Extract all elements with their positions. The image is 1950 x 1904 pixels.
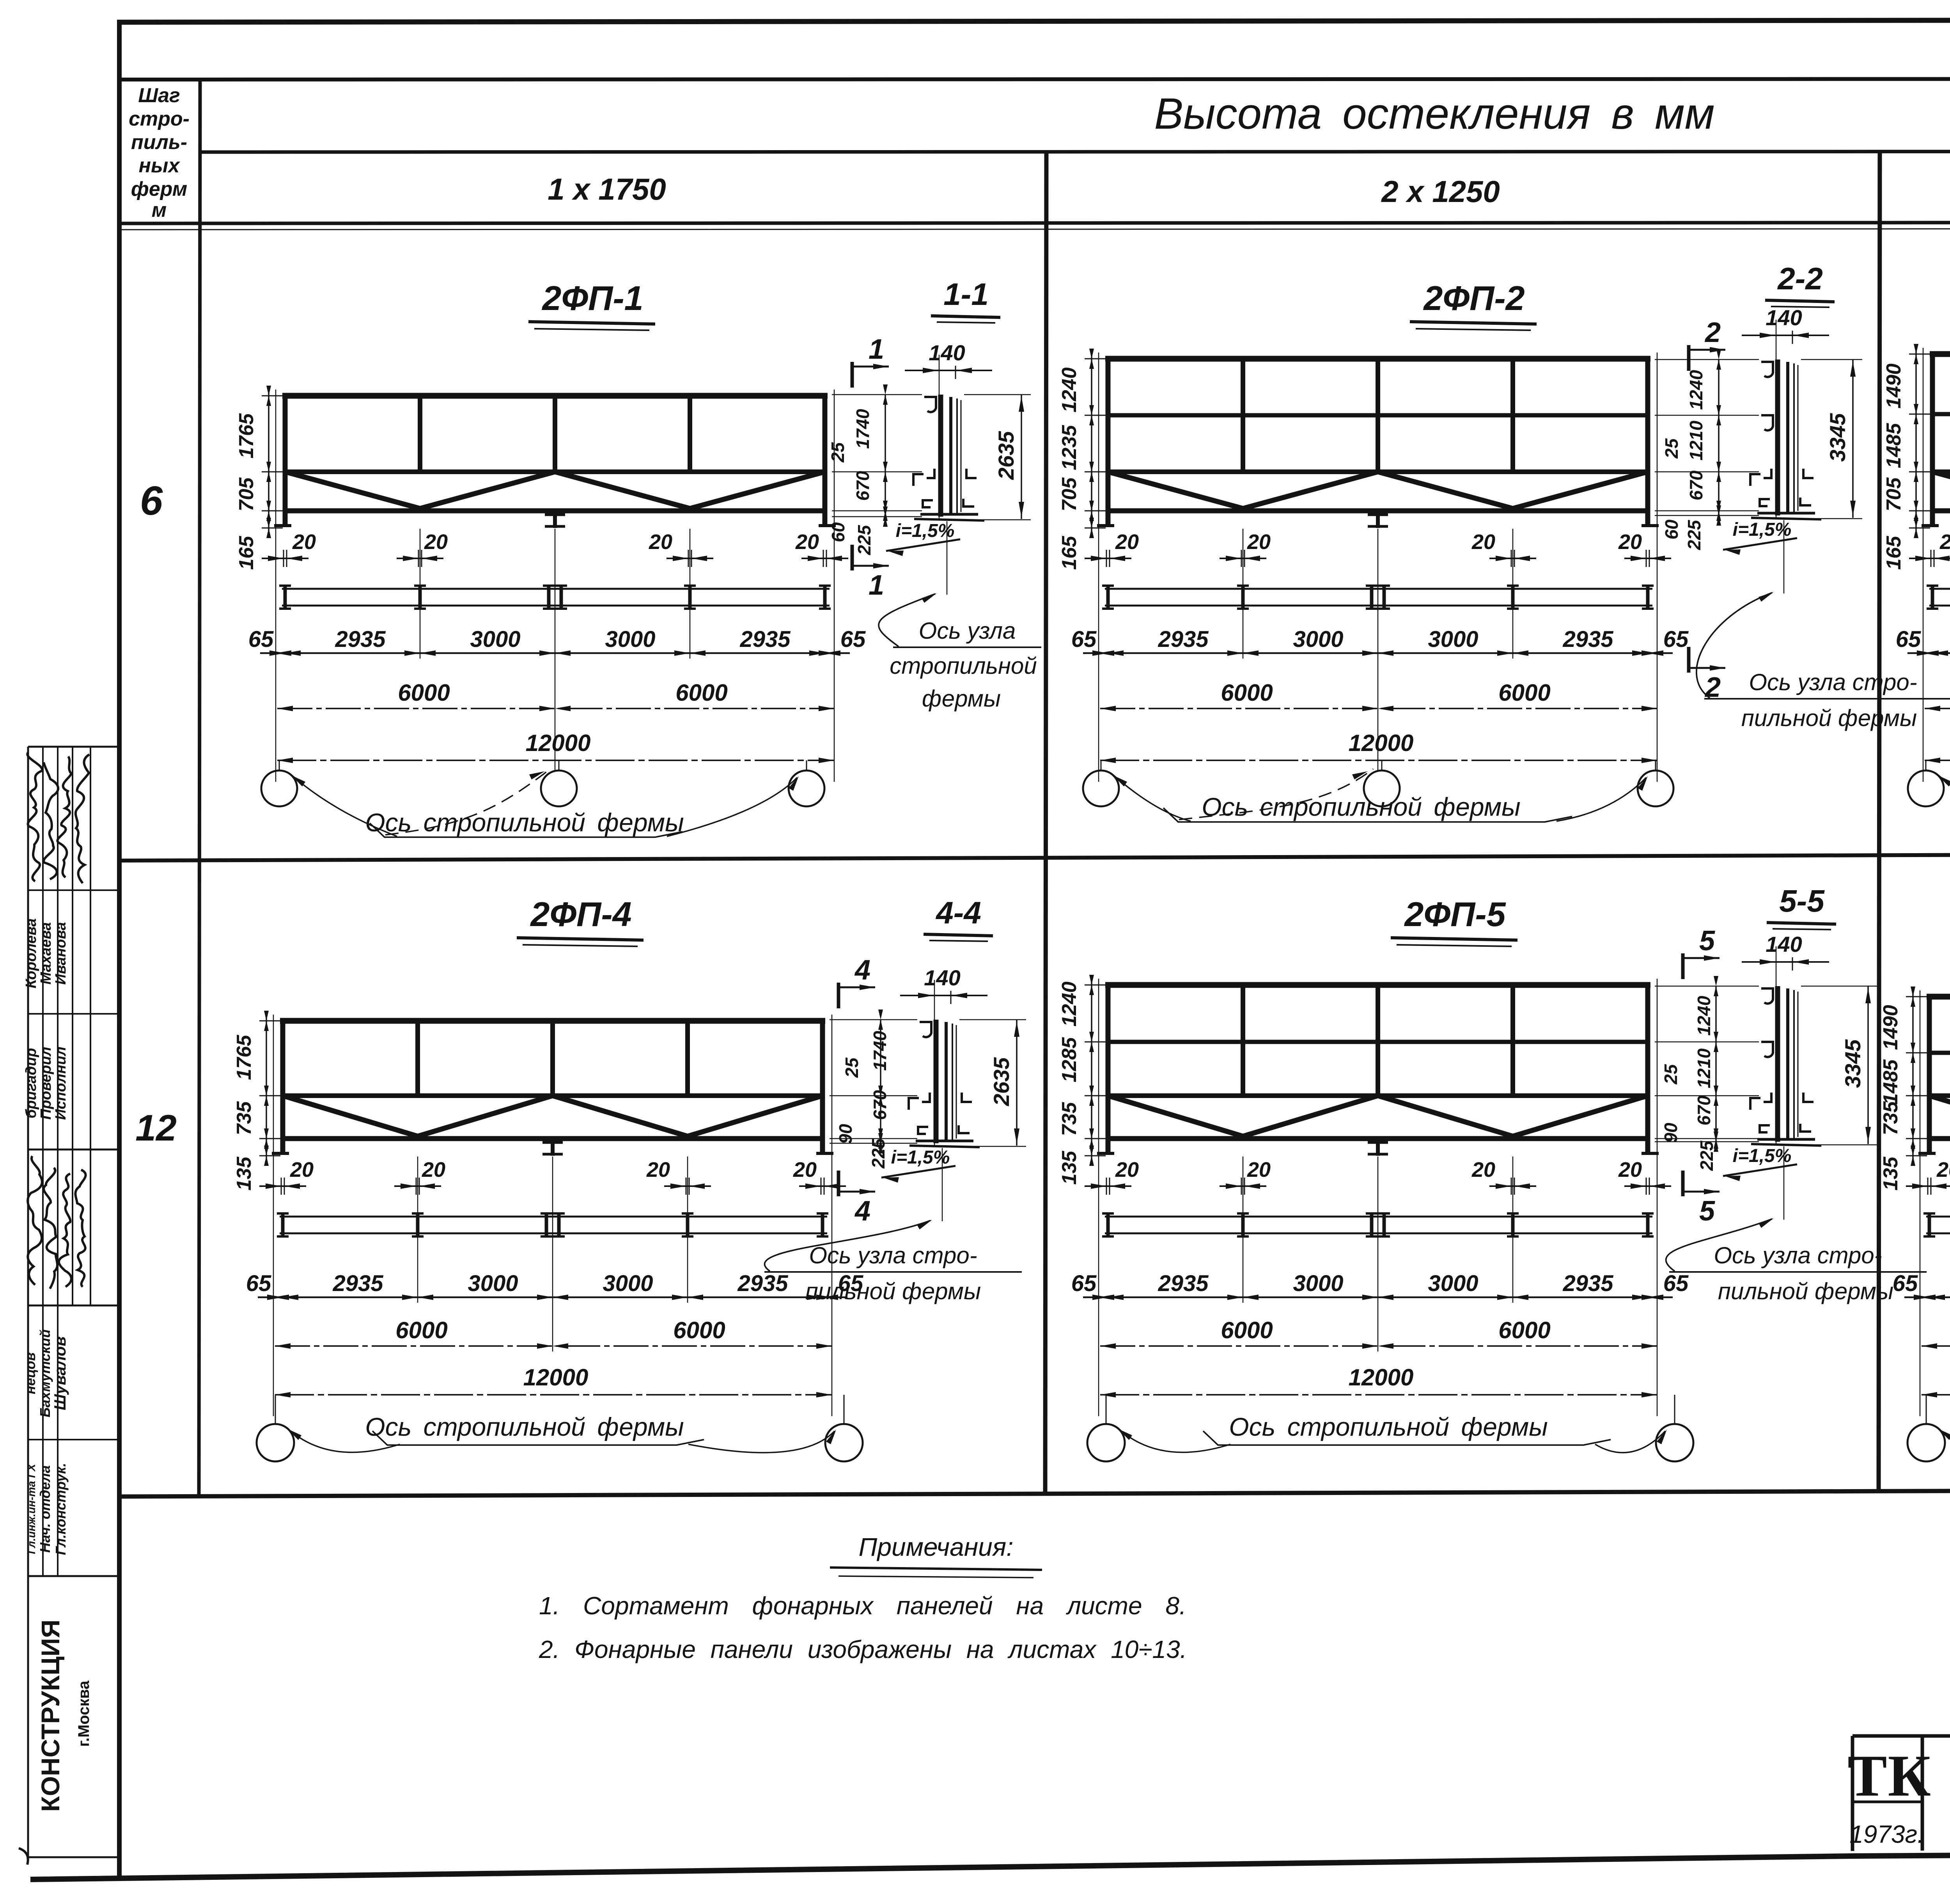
svg-text:12000: 12000 — [523, 1364, 589, 1390]
svg-text:1 х 1750: 1 х 1750 — [548, 172, 666, 206]
svg-text:165: 165 — [235, 536, 258, 570]
svg-text:стропильной: стропильной — [890, 653, 1037, 679]
svg-text:6000: 6000 — [1221, 680, 1273, 706]
svg-text:225: 225 — [1696, 1140, 1717, 1171]
svg-text:25: 25 — [1661, 438, 1682, 459]
svg-text:670: 670 — [1694, 1095, 1714, 1125]
svg-text:пильной фермы: пильной фермы — [1741, 705, 1917, 731]
svg-text:1: 1 — [869, 334, 884, 365]
svg-text:20: 20 — [793, 1158, 817, 1181]
svg-text:705: 705 — [1058, 477, 1081, 512]
svg-text:2935: 2935 — [1562, 1271, 1613, 1296]
svg-text:2935: 2935 — [1158, 627, 1209, 652]
svg-text:Ось узла: Ось узла — [919, 618, 1016, 644]
svg-text:735: 735 — [1058, 1102, 1081, 1136]
svg-text:1210: 1210 — [1694, 1048, 1714, 1088]
svg-text:пильной фермы: пильной фермы — [1718, 1278, 1893, 1304]
svg-text:2ФП-5: 2ФП-5 — [1404, 895, 1506, 933]
svg-text:Примечания:: Примечания: — [859, 1532, 1014, 1561]
svg-text:6000: 6000 — [398, 680, 450, 706]
svg-text:5: 5 — [1699, 925, 1715, 956]
svg-text:140: 140 — [1766, 305, 1802, 330]
svg-text:20: 20 — [1471, 1158, 1495, 1181]
svg-text:2 х 1250: 2 х 1250 — [1381, 174, 1500, 209]
svg-text:Ось узла стро-: Ось узла стро- — [809, 1242, 977, 1268]
svg-text:i=1,5%: i=1,5% — [896, 521, 955, 541]
svg-text:1765: 1765 — [233, 1034, 255, 1080]
svg-text:2935: 2935 — [739, 627, 791, 652]
svg-text:65: 65 — [248, 627, 274, 652]
svg-text:КОНСТРУКЦИЯ: КОНСТРУКЦИЯ — [36, 1619, 65, 1812]
svg-text:нецов: нецов — [22, 1352, 38, 1394]
svg-text:2ФП-2: 2ФП-2 — [1423, 279, 1525, 317]
svg-text:5-5: 5-5 — [1779, 884, 1825, 918]
svg-text:4-4: 4-4 — [935, 895, 981, 930]
svg-text:6: 6 — [140, 478, 163, 524]
svg-text:20: 20 — [1247, 1158, 1271, 1181]
svg-text:12000: 12000 — [1349, 730, 1414, 756]
svg-text:65: 65 — [1663, 1271, 1689, 1296]
svg-text:2635: 2635 — [994, 431, 1018, 480]
svg-text:1240: 1240 — [1058, 981, 1081, 1027]
svg-text:1490: 1490 — [1883, 363, 1905, 409]
svg-text:1285: 1285 — [1058, 1037, 1081, 1082]
svg-text:1490: 1490 — [1879, 1005, 1902, 1050]
svg-text:4: 4 — [854, 1196, 870, 1227]
svg-text:6000: 6000 — [395, 1317, 447, 1343]
svg-text:3000: 3000 — [468, 1271, 518, 1296]
svg-text:2935: 2935 — [1562, 627, 1613, 652]
svg-text:Ось стропильной фермы: Ось стропильной фермы — [1229, 1412, 1548, 1441]
svg-text:ферм: ферм — [131, 178, 187, 200]
svg-text:670: 670 — [853, 471, 873, 501]
svg-text:60: 60 — [1661, 519, 1682, 540]
svg-text:65: 65 — [1071, 1271, 1097, 1296]
svg-text:90: 90 — [1661, 1123, 1681, 1143]
svg-text:Королева: Королева — [23, 918, 39, 988]
svg-text:670: 670 — [1686, 470, 1706, 500]
svg-text:90: 90 — [835, 1124, 856, 1144]
svg-text:12000: 12000 — [1349, 1364, 1414, 1390]
svg-text:735: 735 — [1879, 1101, 1902, 1135]
svg-text:3000: 3000 — [603, 1271, 653, 1296]
svg-text:20: 20 — [1939, 530, 1950, 554]
svg-text:3000: 3000 — [1428, 627, 1478, 652]
svg-text:135: 135 — [1879, 1157, 1902, 1191]
svg-text:Ось стропильной фермы: Ось стропильной фермы — [1202, 792, 1520, 821]
svg-text:1: 1 — [869, 570, 884, 601]
svg-text:Ось стропильной фермы: Ось стропильной фермы — [365, 808, 684, 837]
svg-text:20: 20 — [290, 1158, 314, 1181]
svg-text:2935: 2935 — [335, 627, 386, 652]
svg-text:Ось стропильной фермы: Ось стропильной фермы — [365, 1412, 684, 1441]
svg-text:25: 25 — [842, 1057, 862, 1078]
svg-text:20: 20 — [1115, 530, 1139, 554]
svg-text:1235: 1235 — [1058, 425, 1081, 470]
svg-text:65: 65 — [246, 1271, 271, 1296]
svg-text:i=1,5%: i=1,5% — [1733, 519, 1792, 540]
svg-text:6000: 6000 — [675, 680, 727, 706]
svg-text:6000: 6000 — [1498, 680, 1550, 706]
svg-text:20: 20 — [1618, 530, 1642, 554]
svg-text:12000: 12000 — [526, 730, 591, 756]
svg-text:ных: ных — [139, 154, 181, 177]
svg-text:2635: 2635 — [989, 1057, 1014, 1106]
svg-text:20: 20 — [1247, 530, 1271, 554]
svg-text:20: 20 — [1936, 1158, 1950, 1181]
svg-text:5: 5 — [1699, 1196, 1715, 1227]
svg-text:Проверил: Проверил — [38, 1047, 54, 1120]
svg-text:705: 705 — [1883, 477, 1905, 512]
svg-text:2-2: 2-2 — [1777, 261, 1823, 296]
svg-text:2. Фонарные панели изображе: 2. Фонарные панели изображены на листах … — [539, 1635, 1187, 1663]
svg-text:1740: 1740 — [853, 409, 873, 449]
svg-text:1765: 1765 — [235, 413, 258, 459]
svg-text:Высота остекления в мм: Высота остекления в мм — [1154, 89, 1714, 138]
svg-text:20: 20 — [795, 530, 819, 554]
svg-text:1240: 1240 — [1058, 367, 1081, 413]
svg-text:Гл.инж.ин-та ГХ: Гл.инж.ин-та ГХ — [25, 1463, 37, 1554]
svg-text:6000: 6000 — [1221, 1317, 1273, 1343]
svg-text:6000: 6000 — [673, 1317, 725, 1343]
svg-text:1. Сортамент фонарных п: 1. Сортамент фонарных панелей на листе 8… — [539, 1592, 1186, 1620]
svg-text:12: 12 — [135, 1107, 177, 1149]
svg-text:3000: 3000 — [470, 627, 520, 652]
svg-text:20: 20 — [1471, 530, 1495, 554]
svg-text:бригадир: бригадир — [23, 1048, 39, 1119]
svg-text:1240: 1240 — [1694, 995, 1714, 1036]
svg-text:165: 165 — [1058, 536, 1081, 570]
svg-text:2: 2 — [1704, 317, 1721, 348]
svg-text:1485: 1485 — [1883, 423, 1905, 468]
svg-text:пильной фермы: пильной фермы — [805, 1278, 981, 1304]
svg-text:25: 25 — [1661, 1064, 1681, 1085]
svg-text:г.Москва: г.Москва — [75, 1680, 92, 1746]
svg-text:3345: 3345 — [1825, 413, 1850, 462]
svg-text:Ось узла стро-: Ось узла стро- — [1749, 669, 1917, 695]
svg-text:20: 20 — [424, 530, 448, 554]
svg-text:1973г.: 1973г. — [1849, 1820, 1924, 1848]
svg-text:225: 225 — [868, 1138, 888, 1169]
svg-text:3000: 3000 — [1293, 627, 1343, 652]
svg-text:Ось узла стро-: Ось узла стро- — [1714, 1242, 1882, 1268]
svg-text:3345: 3345 — [1840, 1039, 1865, 1088]
svg-text:20: 20 — [292, 530, 316, 554]
svg-text:i=1,5%: i=1,5% — [891, 1147, 950, 1168]
svg-text:20: 20 — [1115, 1158, 1139, 1181]
svg-text:165: 165 — [1883, 536, 1905, 570]
svg-text:Махаева: Махаева — [38, 922, 54, 985]
svg-text:2935: 2935 — [1158, 1271, 1209, 1296]
svg-text:пиль-: пиль- — [131, 131, 187, 154]
svg-text:140: 140 — [1766, 932, 1802, 956]
svg-text:735: 735 — [233, 1101, 255, 1135]
svg-text:3000: 3000 — [1293, 1271, 1343, 1296]
svg-text:65: 65 — [1893, 1271, 1918, 1296]
svg-text:65: 65 — [1663, 627, 1689, 652]
svg-text:2935: 2935 — [332, 1271, 383, 1296]
svg-text:Иванова: Иванова — [53, 922, 69, 985]
svg-text:670: 670 — [870, 1090, 890, 1120]
svg-text:225: 225 — [1684, 519, 1704, 550]
svg-text:65: 65 — [1071, 627, 1097, 652]
svg-text:140: 140 — [929, 340, 965, 365]
svg-text:2ФП-4: 2ФП-4 — [530, 895, 631, 933]
svg-text:3000: 3000 — [1428, 1271, 1478, 1296]
svg-text:60: 60 — [828, 522, 848, 542]
svg-text:20: 20 — [646, 1158, 670, 1181]
svg-text:20: 20 — [422, 1158, 445, 1181]
svg-text:Шаг: Шаг — [138, 84, 180, 107]
svg-text:20: 20 — [1618, 1158, 1642, 1181]
svg-text:20: 20 — [649, 530, 672, 554]
svg-text:3000: 3000 — [605, 627, 655, 652]
svg-text:65: 65 — [1896, 627, 1921, 652]
svg-text:м: м — [152, 199, 167, 221]
svg-text:Шувалов: Шувалов — [51, 1336, 69, 1410]
svg-text:6000: 6000 — [1498, 1317, 1550, 1343]
svg-text:225: 225 — [854, 524, 874, 555]
svg-text:4: 4 — [854, 955, 870, 986]
svg-text:135: 135 — [233, 1157, 255, 1191]
svg-text:2ФП-1: 2ФП-1 — [541, 279, 643, 317]
svg-text:ТК: ТК — [1847, 1743, 1932, 1808]
svg-text:i=1,5%: i=1,5% — [1733, 1146, 1792, 1166]
svg-text:65: 65 — [840, 627, 866, 652]
svg-text:Гл.конструк.: Гл.конструк. — [53, 1463, 69, 1555]
svg-text:135: 135 — [1058, 1151, 1081, 1185]
svg-text:1740: 1740 — [870, 1031, 890, 1071]
svg-text:1-1: 1-1 — [943, 277, 989, 312]
svg-text:140: 140 — [924, 965, 960, 990]
svg-text:1210: 1210 — [1686, 420, 1706, 461]
svg-text:2935: 2935 — [737, 1271, 788, 1296]
svg-text:стро-: стро- — [129, 108, 190, 130]
svg-text:Нач. отдела: Нач. отдела — [37, 1465, 53, 1553]
svg-text:1485: 1485 — [1879, 1059, 1902, 1105]
svg-text:705: 705 — [235, 477, 258, 512]
svg-text:25: 25 — [828, 442, 848, 463]
svg-text:фермы: фермы — [922, 685, 1001, 712]
svg-text:Исполнил: Исполнил — [53, 1047, 69, 1120]
svg-text:1240: 1240 — [1686, 370, 1706, 410]
